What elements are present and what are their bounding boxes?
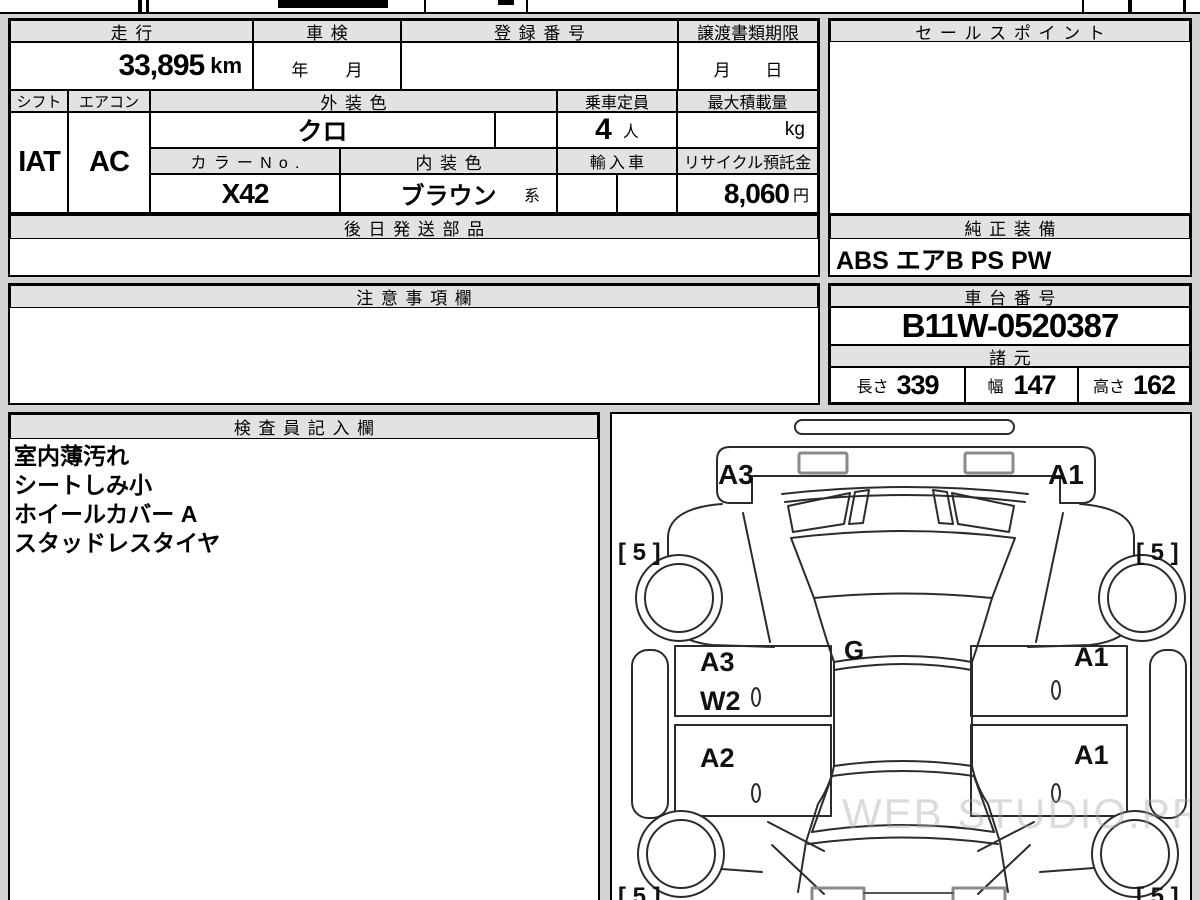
- later-parts-box: 後日発送部品: [8, 213, 820, 277]
- tire-grade-front-left: [ 5 ]: [618, 883, 661, 900]
- door-rear-left: [675, 646, 831, 716]
- spec-width-cell: 幅147: [965, 367, 1078, 403]
- shift-header: シフト: [10, 90, 68, 112]
- inspector-notes-body: 室内薄汚れ シートしみ小 ホイールカバー A スタッドレスタイヤ: [14, 442, 220, 558]
- tire-grade-rear-left: [ 5 ]: [618, 539, 661, 566]
- import-header: 輸入車: [557, 148, 677, 174]
- exterior-color-value-cell: クロ: [150, 112, 495, 148]
- inspection-year-label: 年: [291, 56, 308, 81]
- maxload-unit: kg: [785, 119, 805, 141]
- mileage-header: 走行: [10, 20, 253, 42]
- note-line: ホイールカバー A: [14, 500, 220, 529]
- deadline-header: 譲渡書類期限: [678, 20, 818, 42]
- inspection-header: 車検: [253, 20, 401, 42]
- auction-sheet: 走行 車検 登録番号 譲渡書類期限 33,895 km 年 月 月 日 シフト …: [0, 0, 1200, 900]
- interior-color-value-cell: ブラウン 系: [340, 174, 557, 213]
- later-parts-header: 後日発送部品: [10, 215, 818, 239]
- panel-label-door-right-front: A1: [1074, 740, 1109, 770]
- door-handle-left-front: [752, 784, 760, 802]
- tire-grade-rear-right: [ 5 ]: [1136, 539, 1179, 566]
- maxload-header: 最大積載量: [677, 90, 818, 112]
- chassis-header: 車台番号: [830, 285, 1190, 307]
- car-diagram-box: WEB STUDIO.PRO A3 A1 [ 5 ] [ 5 ] G A3 W2…: [610, 412, 1192, 900]
- watermark: WEB STUDIO.PRO: [842, 790, 1190, 837]
- chassis-number-cell: B11W-0520387: [830, 307, 1190, 345]
- cabin-side-right: [972, 598, 1008, 892]
- note-line: 室内薄汚れ: [14, 442, 220, 471]
- interior-suffix: 系: [524, 182, 540, 206]
- panel-label-rear-left: A3: [718, 459, 754, 490]
- panel-label-door-left-window: W2: [700, 686, 741, 716]
- panel-label-rear-right: A1: [1048, 459, 1084, 490]
- inspection-month-label: 月: [346, 56, 363, 81]
- tail-light-left: [799, 453, 847, 473]
- cutoff-text-fragment: [278, 0, 388, 8]
- cautions-header: 注意事項欄: [10, 285, 818, 308]
- capacity-unit: 人: [623, 118, 639, 142]
- spec-height-cell: 高さ162: [1078, 367, 1190, 403]
- specs-header: 諸元: [830, 345, 1190, 367]
- shift-value-cell: IAT: [10, 112, 68, 213]
- color-no-header: カラーNo.: [150, 148, 340, 174]
- windshield-top: [832, 761, 974, 776]
- deadline-month-label: 月: [714, 56, 731, 81]
- mileage-unit: km: [210, 53, 242, 79]
- c-pillars: [743, 513, 1063, 642]
- cautions-box: 注意事項欄: [8, 283, 820, 405]
- vehicle-info-table: 走行 車検 登録番号 譲渡書類期限 33,895 km 年 月 月 日 シフト …: [8, 18, 820, 215]
- equipment-box: 純正装備 ABS エアB PS PW: [828, 213, 1192, 277]
- tail-light-right: [965, 453, 1013, 473]
- equipment-value: ABS エアB PS PW: [836, 241, 1051, 277]
- maxload-value-cell: kg: [677, 112, 818, 148]
- deadline-day-label: 日: [765, 56, 782, 81]
- door-handle-right-rear: [1052, 681, 1060, 699]
- registration-value-cell: [401, 42, 678, 90]
- exterior-color-extra-cell: [495, 112, 557, 148]
- deadline-value-cell: 月 日: [678, 42, 818, 90]
- panel-label-door-left-front: A2: [700, 743, 735, 773]
- cutoff-row: [0, 0, 1200, 14]
- door-front-left: [675, 725, 831, 816]
- rear-glass: [791, 531, 1015, 598]
- import-value-cell-2: [617, 174, 677, 213]
- note-line: シートしみ小: [14, 471, 220, 500]
- mileage-value-cell: 33,895 km: [10, 42, 253, 90]
- recycle-value-cell: 8,060 円: [677, 174, 818, 213]
- tire-grade-front-right: [ 5 ]: [1136, 883, 1179, 900]
- aircon-value-cell: AC: [68, 112, 150, 213]
- panel-label-door-left-rear: A3: [700, 647, 735, 677]
- color-no-value-cell: X42: [150, 174, 340, 213]
- exterior-color-header: 外装色: [150, 90, 557, 112]
- rear-bumper-strip: [795, 420, 1014, 434]
- recycle-header: リサイクル預託金: [677, 148, 818, 174]
- capacity-value-cell: 4 人: [557, 112, 677, 148]
- mileage-value: 33,895: [118, 49, 204, 83]
- import-value-cell-1: [557, 174, 617, 213]
- inspector-notes-box: 検査員記入欄 室内薄汚れ シートしみ小 ホイールカバー A スタッドレスタイヤ: [8, 412, 600, 900]
- inspector-notes-header: 検査員記入欄: [10, 414, 598, 439]
- panel-label-door-right-rear: A1: [1074, 642, 1109, 672]
- interior-color-header: 内装色: [340, 148, 557, 174]
- note-line: スタッドレスタイヤ: [14, 529, 220, 558]
- rocker-panel-left: [632, 650, 668, 818]
- door-handle-left-rear: [752, 688, 760, 706]
- chassis-number: B11W-0520387: [902, 307, 1119, 345]
- aircon-header: エアコン: [68, 90, 150, 112]
- equipment-header: 純正装備: [830, 215, 1190, 239]
- inspection-value-cell: 年 月: [253, 42, 401, 90]
- spec-length-cell: 長さ339: [830, 367, 965, 403]
- capacity-header: 乗車定員: [557, 90, 677, 112]
- sales-point-header: セールスポイント: [830, 20, 1190, 42]
- registration-header: 登録番号: [401, 20, 678, 42]
- sales-point-box: セールスポイント: [828, 18, 1192, 215]
- car-diagram: WEB STUDIO.PRO A3 A1 [ 5 ] [ 5 ] G A3 W2…: [612, 414, 1190, 900]
- recycle-unit: 円: [793, 182, 809, 206]
- panel-label-roof: G: [844, 635, 864, 665]
- chassis-box: 車台番号 B11W-0520387 諸元 長さ339 幅147 高さ162: [828, 283, 1192, 405]
